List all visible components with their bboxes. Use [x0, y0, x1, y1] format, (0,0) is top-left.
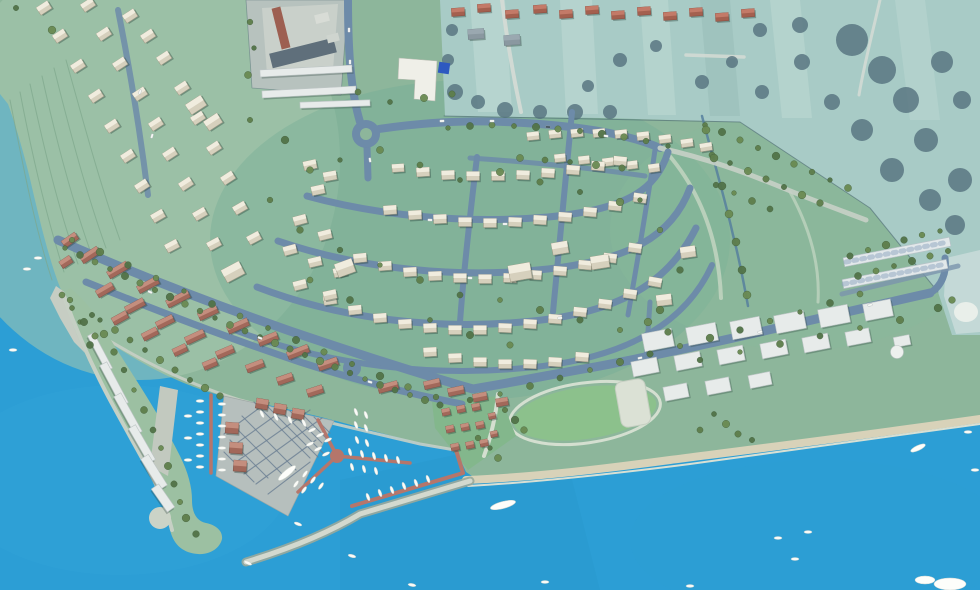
scale-model-photo: [0, 0, 980, 590]
urban-model-aerial-view: [0, 0, 980, 590]
